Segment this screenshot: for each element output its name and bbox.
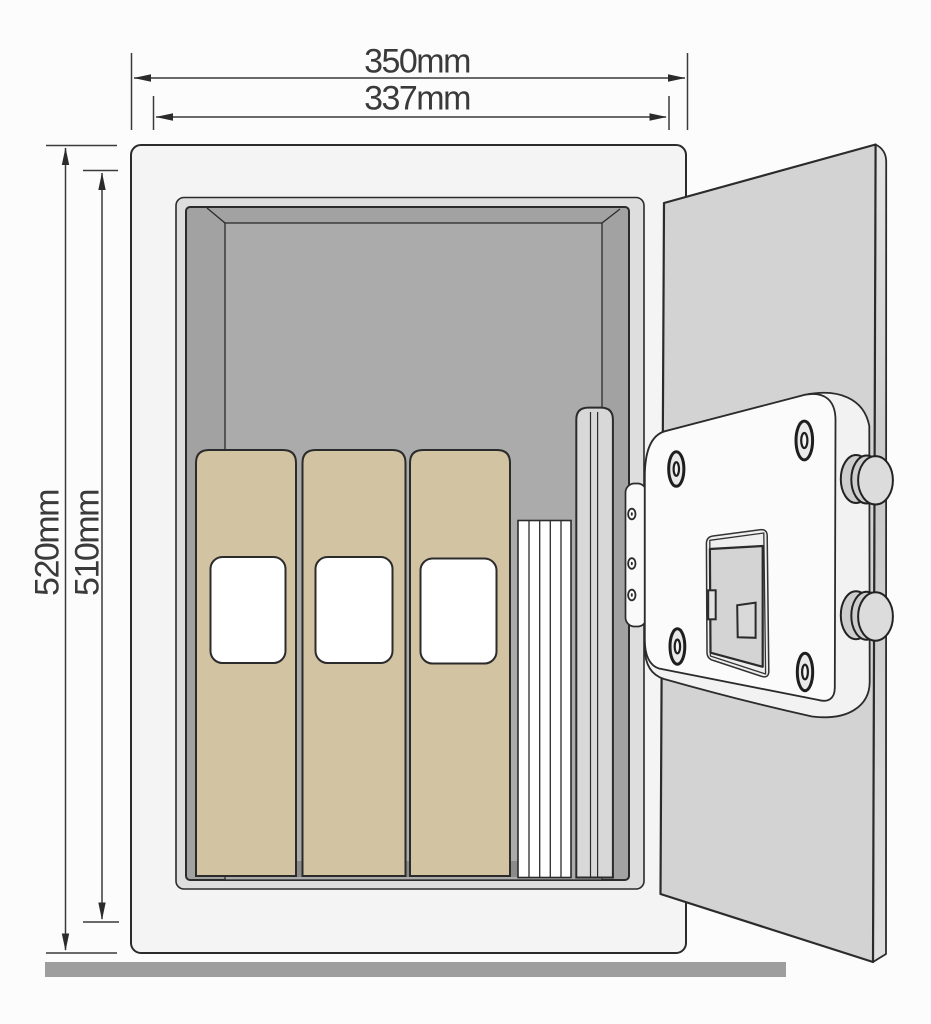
svg-text:350mm: 350mm [364, 43, 470, 81]
svg-text:510mm: 510mm [69, 490, 107, 596]
svg-text:520mm: 520mm [29, 490, 67, 596]
svg-text:337mm: 337mm [364, 80, 470, 118]
